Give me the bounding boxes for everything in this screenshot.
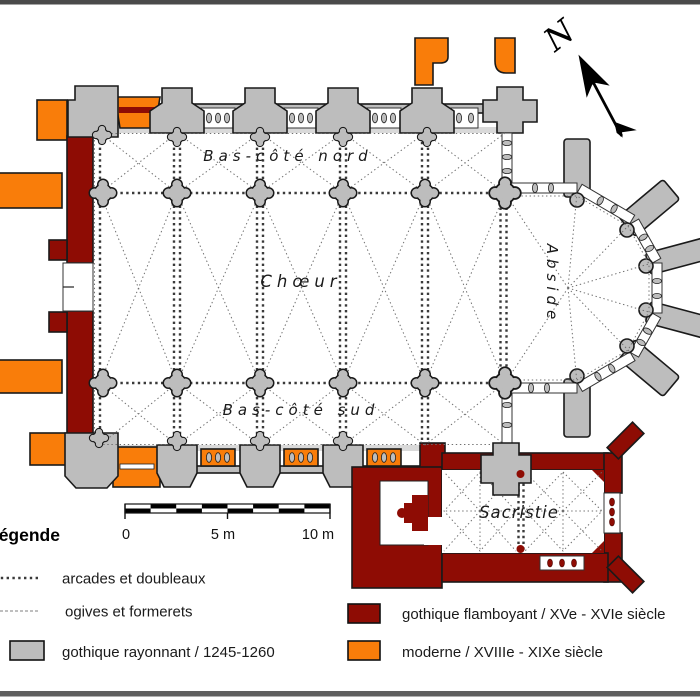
scale-tick-5m: 5 m xyxy=(211,527,235,543)
north-arrow: N xyxy=(536,11,637,144)
legend-item-ogives: ogives et formerets xyxy=(0,604,193,621)
legend-item-moderne: moderne / XVIIIe - XIXe siècle xyxy=(348,641,603,661)
scale-tick-0: 0 xyxy=(122,527,130,543)
legend-item-arcades: arcades et doubleaux xyxy=(0,571,206,588)
scale-bar: 0 5 m 10 m xyxy=(122,504,334,543)
apse xyxy=(502,133,700,443)
label-south-aisle: Bas-côté sud xyxy=(223,401,380,419)
modern-west-annexes xyxy=(0,100,67,465)
legend-item-label: gothique flamboyant / XVe - XVIe siècle xyxy=(402,606,666,623)
legend-item-label: ogives et formerets xyxy=(65,604,193,621)
modern-fragment-2 xyxy=(495,38,515,73)
northwest-pier xyxy=(68,86,118,137)
north-wall xyxy=(68,38,537,137)
label-north-aisle: Bas-côté nord xyxy=(203,147,372,165)
swatch-gothique-rayonnant xyxy=(10,641,44,660)
legend-item-rayonnant: gothique rayonnant / 1245-1260 xyxy=(10,641,275,661)
top-border xyxy=(0,0,700,5)
bottom-border xyxy=(0,691,700,697)
northeast-pier xyxy=(483,87,537,133)
legend-title: Légende xyxy=(0,525,60,545)
north-letter: N xyxy=(536,11,583,59)
legend-item-label: gothique rayonnant / 1245-1260 xyxy=(62,644,275,661)
legend-item-flamboyant: gothique flamboyant / XVe - XVIe siècle xyxy=(348,604,666,623)
modern-fragment-1 xyxy=(415,38,448,85)
legend-item-label: arcades et doubleaux xyxy=(62,571,206,588)
label-sacristy: Sacristie xyxy=(479,503,559,522)
scale-tick-10m: 10 m xyxy=(302,527,334,543)
label-choir: Chœur xyxy=(260,272,341,291)
scale-bar-blocks xyxy=(125,504,330,519)
swatch-moderne xyxy=(348,641,380,660)
church-floor-plan: Bas-côté nord Chœur Bas-côté sud Abside … xyxy=(0,0,700,700)
masonry-walls xyxy=(0,38,700,593)
legend-item-label: moderne / XVIIIe - XIXe siècle xyxy=(402,644,603,661)
label-apse: Abside xyxy=(543,243,561,325)
swatch-gothique-flamboyant xyxy=(348,604,380,623)
